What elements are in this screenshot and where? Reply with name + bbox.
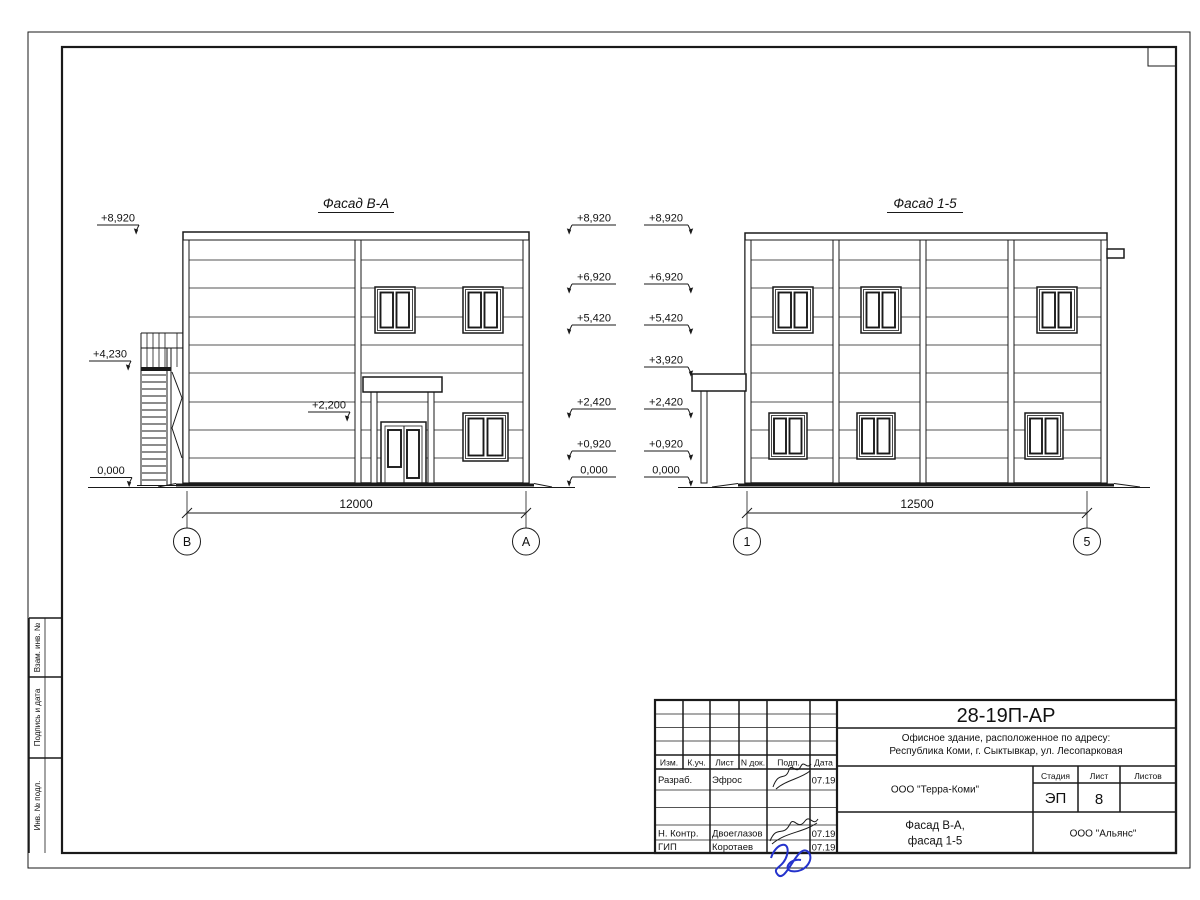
svg-text:+2,420: +2,420: [649, 397, 683, 409]
window: [463, 413, 508, 461]
col-header: К.уч.: [687, 758, 705, 768]
drawing-title: Фасад В-А,: [905, 820, 965, 832]
axis-marker-1: 1: [734, 528, 761, 555]
svg-text:5: 5: [1084, 535, 1091, 549]
facade-15-title: Фасад 1-5: [893, 196, 957, 211]
window: [773, 287, 813, 333]
svg-text:+8,920: +8,920: [101, 213, 135, 225]
svg-text:+3,920: +3,920: [649, 355, 683, 367]
signature-gip: [771, 845, 810, 876]
col-header: Лист: [715, 758, 734, 768]
stamp-label: Взам. инв. №: [33, 622, 42, 672]
canopy-post: [701, 391, 707, 483]
dimension-text: 12000: [339, 497, 373, 511]
facade-ba: 12000 В А Фасад В-А +8,920 +4,230 0,000: [88, 196, 616, 555]
svg-text:1: 1: [744, 535, 751, 549]
staff-name: Двоеглазов: [712, 829, 763, 840]
staff-date: 07.19: [812, 843, 836, 854]
elevation-mark: +8,920: [97, 213, 139, 235]
svg-text:0,000: 0,000: [580, 465, 608, 477]
elevation-mark: +5,420: [644, 313, 693, 335]
pilaster: [1008, 240, 1014, 483]
staff-name: Эфрос: [712, 775, 742, 786]
facade-ba-title: Фасад В-А: [323, 196, 389, 211]
pilaster: [920, 240, 926, 483]
elevation-mark: 0,000: [644, 465, 693, 487]
signature-razrab: [773, 764, 811, 789]
window: [861, 287, 901, 333]
pilaster: [523, 240, 529, 483]
window: [463, 287, 503, 333]
entrance-door: [381, 422, 426, 483]
sheets-label: Листов: [1134, 771, 1162, 781]
sheet-value: 8: [1095, 791, 1103, 808]
stamp-label: Подпись и дата: [33, 688, 42, 746]
elevation-mark: +0,920: [567, 439, 616, 461]
window: [857, 413, 895, 459]
elevation-mark: +6,920: [644, 272, 693, 294]
pilaster: [183, 240, 189, 483]
stamp-label: Инв. № подл.: [33, 781, 42, 831]
elevation-mark: 0,000: [567, 465, 616, 487]
dimension-ba: 12000: [182, 491, 531, 528]
staff-role: ГИП: [658, 842, 677, 853]
project-description: Республика Коми, г. Сыктывкар, ул. Лесоп…: [889, 745, 1122, 757]
svg-text:+5,420: +5,420: [649, 313, 683, 325]
drawing-title: фасад 1-5: [908, 836, 963, 848]
canopy: [363, 377, 442, 392]
staff-role: Н. Контр.: [658, 829, 698, 840]
dimension-text: 12500: [900, 497, 934, 511]
side-stamp-column: Взам. инв. № Подпись и дата Инв. № подл.: [29, 618, 62, 853]
stage-label: Стадия: [1041, 771, 1070, 781]
window: [1025, 413, 1063, 459]
staff-role: Разраб.: [658, 775, 692, 786]
elevation-mark: 0,000: [90, 465, 132, 487]
elevation-mark: +5,420: [567, 313, 616, 335]
window: [769, 413, 807, 459]
drawing-canvas: 12000 В А Фасад В-А +8,920 +4,230 0,000: [0, 0, 1200, 900]
svg-text:0,000: 0,000: [652, 465, 680, 477]
client-org: ООО "Терра-Коми": [891, 785, 980, 796]
title-block: 28-19П-АР Офисное здание, расположенное …: [655, 700, 1176, 876]
col-header: Изм.: [660, 758, 678, 768]
pilaster: [1101, 240, 1107, 483]
svg-text:+8,920: +8,920: [649, 213, 683, 225]
staff-name: Коротаев: [712, 842, 753, 853]
staff-date: 07.19: [812, 829, 836, 840]
svg-text:+6,920: +6,920: [577, 272, 611, 284]
corner-stamp-box: [1148, 47, 1176, 66]
axis-marker-b: В: [174, 528, 201, 555]
elevation-mark: +8,920: [567, 213, 616, 235]
svg-text:+2,420: +2,420: [577, 397, 611, 409]
svg-text:В: В: [183, 535, 191, 549]
svg-text:+0,920: +0,920: [649, 439, 683, 451]
elevation-mark: +2,420: [567, 397, 616, 419]
fire-escape-stair: [137, 333, 189, 486]
dimension-15: 12500: [742, 491, 1092, 528]
canopy: [692, 374, 746, 391]
svg-text:0,000: 0,000: [97, 465, 125, 477]
elevation-mark: +4,230: [89, 349, 131, 371]
canopy-post: [371, 392, 377, 483]
elevation-mark: +0,920: [644, 439, 693, 461]
col-header: N док.: [741, 758, 765, 768]
svg-text:+2,200: +2,200: [312, 400, 346, 412]
elevation-mark: +6,920: [567, 272, 616, 294]
roof-outlet: [1107, 249, 1124, 258]
svg-text:+8,920: +8,920: [577, 213, 611, 225]
author-org: ООО "Альянс": [1070, 829, 1137, 840]
doc-number: 28-19П-АР: [957, 705, 1056, 727]
sheet-label: Лист: [1090, 771, 1109, 781]
window: [1037, 287, 1077, 333]
svg-text:+6,920: +6,920: [649, 272, 683, 284]
elevation-mark: +8,920: [644, 213, 693, 235]
stair-rungs: [142, 375, 166, 480]
pilaster: [745, 240, 751, 483]
stage-value: ЭП: [1045, 790, 1067, 807]
svg-text:+5,420: +5,420: [577, 313, 611, 325]
elevation-mark: +3,920: [644, 355, 693, 377]
canopy-post: [428, 392, 434, 483]
facade-15: 12500 1 5 Фасад 1-5 +8,920 +6,920 +5,420…: [644, 196, 1150, 555]
axis-marker-5: 5: [1074, 528, 1101, 555]
project-description: Офисное здание, расположенное по адресу:: [902, 732, 1111, 744]
axis-marker-a: А: [513, 528, 540, 555]
svg-text:А: А: [522, 535, 531, 549]
window: [375, 287, 415, 333]
pilaster: [833, 240, 839, 483]
staff-date: 07.19: [812, 776, 836, 787]
svg-text:+0,920: +0,920: [577, 439, 611, 451]
pilaster: [355, 240, 361, 483]
svg-text:+4,230: +4,230: [93, 349, 127, 361]
col-header: Дата: [814, 758, 833, 768]
drawing-sheet: 12000 В А Фасад В-А +8,920 +4,230 0,000: [0, 0, 1200, 900]
col-header: Подп.: [777, 758, 800, 768]
elevation-mark: +2,420: [644, 397, 693, 419]
